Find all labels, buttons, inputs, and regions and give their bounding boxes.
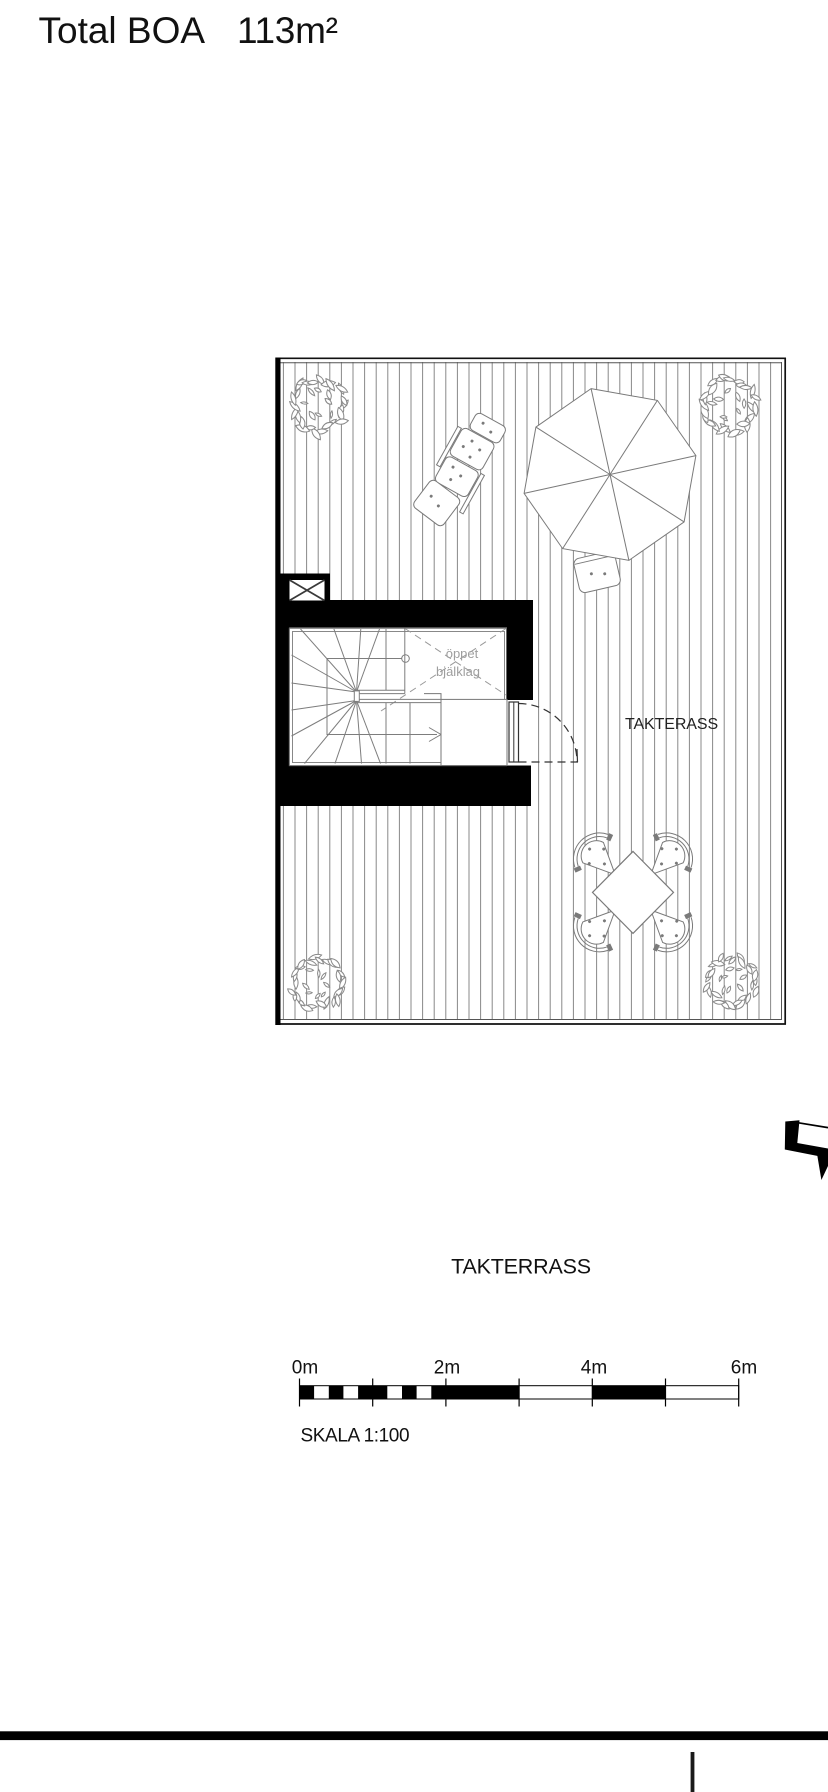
svg-text:4m: 4m (581, 1358, 607, 1379)
svg-text:Total BOA: Total BOA (39, 10, 206, 51)
svg-text:6m: 6m (731, 1358, 757, 1379)
svg-text:SKALA 1:100: SKALA 1:100 (301, 1426, 410, 1447)
svg-text:bjälklag: bjälklag (436, 664, 480, 679)
svg-text:öppet: öppet (446, 646, 479, 661)
svg-text:TAKTERASS: TAKTERASS (625, 716, 718, 733)
svg-text:TAKTERRASS: TAKTERRASS (451, 1255, 591, 1279)
svg-text:113m²: 113m² (237, 10, 338, 51)
svg-text:0m: 0m (292, 1358, 318, 1379)
svg-text:2m: 2m (434, 1358, 460, 1379)
